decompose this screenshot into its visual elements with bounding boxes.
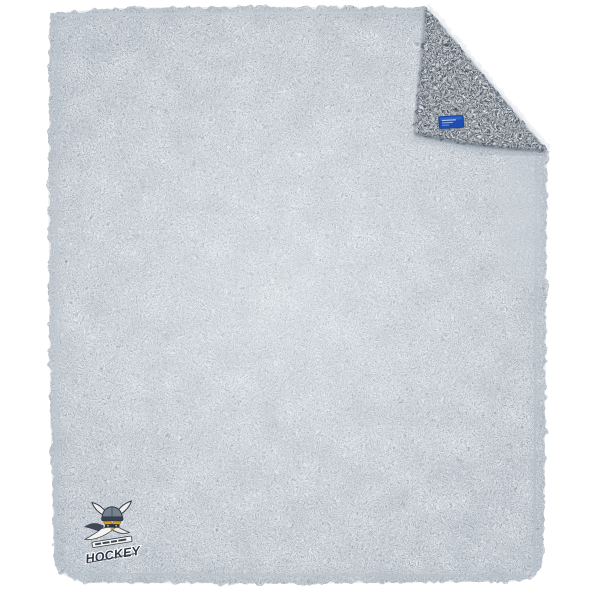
- mascot-eye-glint: [115, 525, 117, 526]
- blanket-photo-canvas: HOCKEY: [0, 0, 600, 600]
- product-photo: HOCKEY: [0, 0, 600, 600]
- mascot-eye-glint: [107, 525, 109, 526]
- brand-tag: [438, 115, 464, 130]
- mascot-nose: [111, 528, 114, 530]
- mascot-eyes: [105, 524, 120, 527]
- mascot-helmet-brim: [102, 517, 124, 521]
